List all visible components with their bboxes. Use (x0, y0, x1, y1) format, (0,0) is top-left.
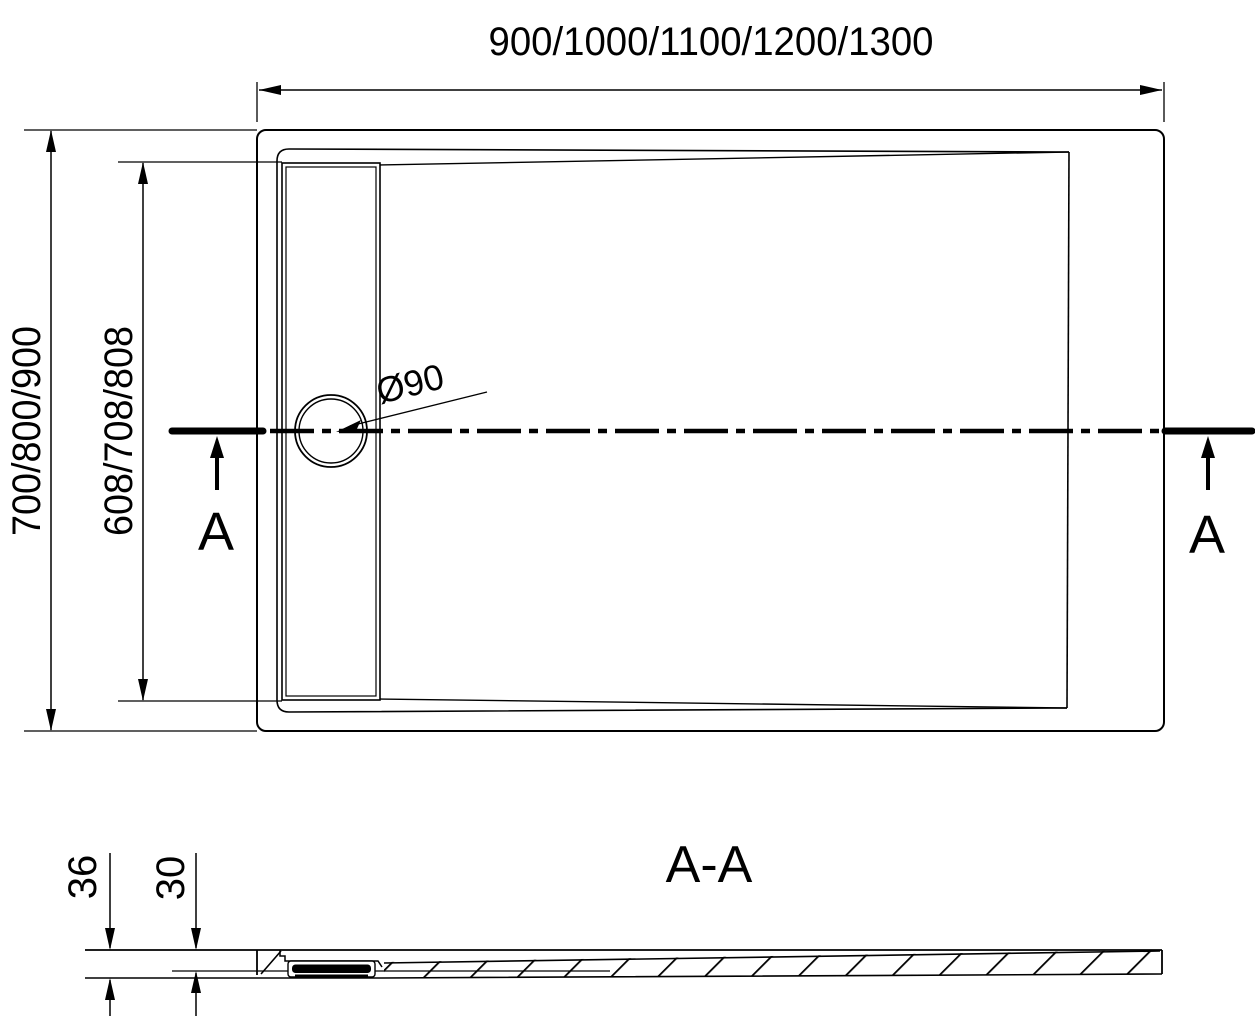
technical-drawing-shower-tray: A A Ø90 900/1000/1100/1200/1300 (0, 0, 1255, 1021)
drain-length-dimension-text: 608/708/808 (97, 326, 141, 536)
section-title: A-A (666, 836, 753, 894)
basin-depth-dimension-text: 30 (149, 856, 193, 901)
section-arrow-right-head (1201, 436, 1215, 458)
dim-arrow-bottom (46, 709, 56, 731)
dim-arrow-up (191, 971, 201, 993)
section-view: A-A 36 (61, 836, 1164, 1016)
drain-trap (288, 961, 375, 977)
dim-arrow-bottom (138, 679, 148, 701)
dim-arrow-top (138, 162, 148, 184)
dim-arrow-down (191, 928, 201, 950)
overall-height-dimension: 36 (61, 853, 115, 1016)
dim-arrow-down (105, 928, 115, 950)
section-marker-left: A (198, 436, 234, 562)
dim-arrow-top (46, 130, 56, 152)
drain-trap-gasket (295, 975, 368, 978)
top-view: A A Ø90 900/1000/1100/1200/1300 (5, 20, 1252, 731)
section-arrow-left-head (210, 436, 224, 458)
outer-depth-dimension-text: 700/800/900 (5, 326, 49, 536)
drawing-canvas: A A Ø90 900/1000/1100/1200/1300 (0, 0, 1255, 1021)
width-dimension-text: 900/1000/1100/1200/1300 (489, 20, 934, 64)
floor-slope-edge-top (380, 152, 1069, 165)
section-marker-right: A (1189, 436, 1225, 565)
floor-slope-edge-bottom (380, 699, 1067, 708)
drain-diameter-text: Ø90 (372, 356, 448, 412)
dim-arrow-up (105, 978, 115, 1000)
dim-arrow-left (259, 85, 281, 95)
width-dimension: 900/1000/1100/1200/1300 (257, 20, 1164, 122)
drain-diameter-callout: Ø90 (336, 356, 487, 432)
basin-depth-dimension: 30 (149, 853, 201, 1016)
overall-height-dimension-text: 36 (61, 855, 105, 900)
section-label-right: A (1189, 505, 1225, 565)
section-label-left: A (198, 502, 234, 562)
dim-arrow-right (1140, 85, 1162, 95)
drain-trap-body (292, 965, 371, 974)
